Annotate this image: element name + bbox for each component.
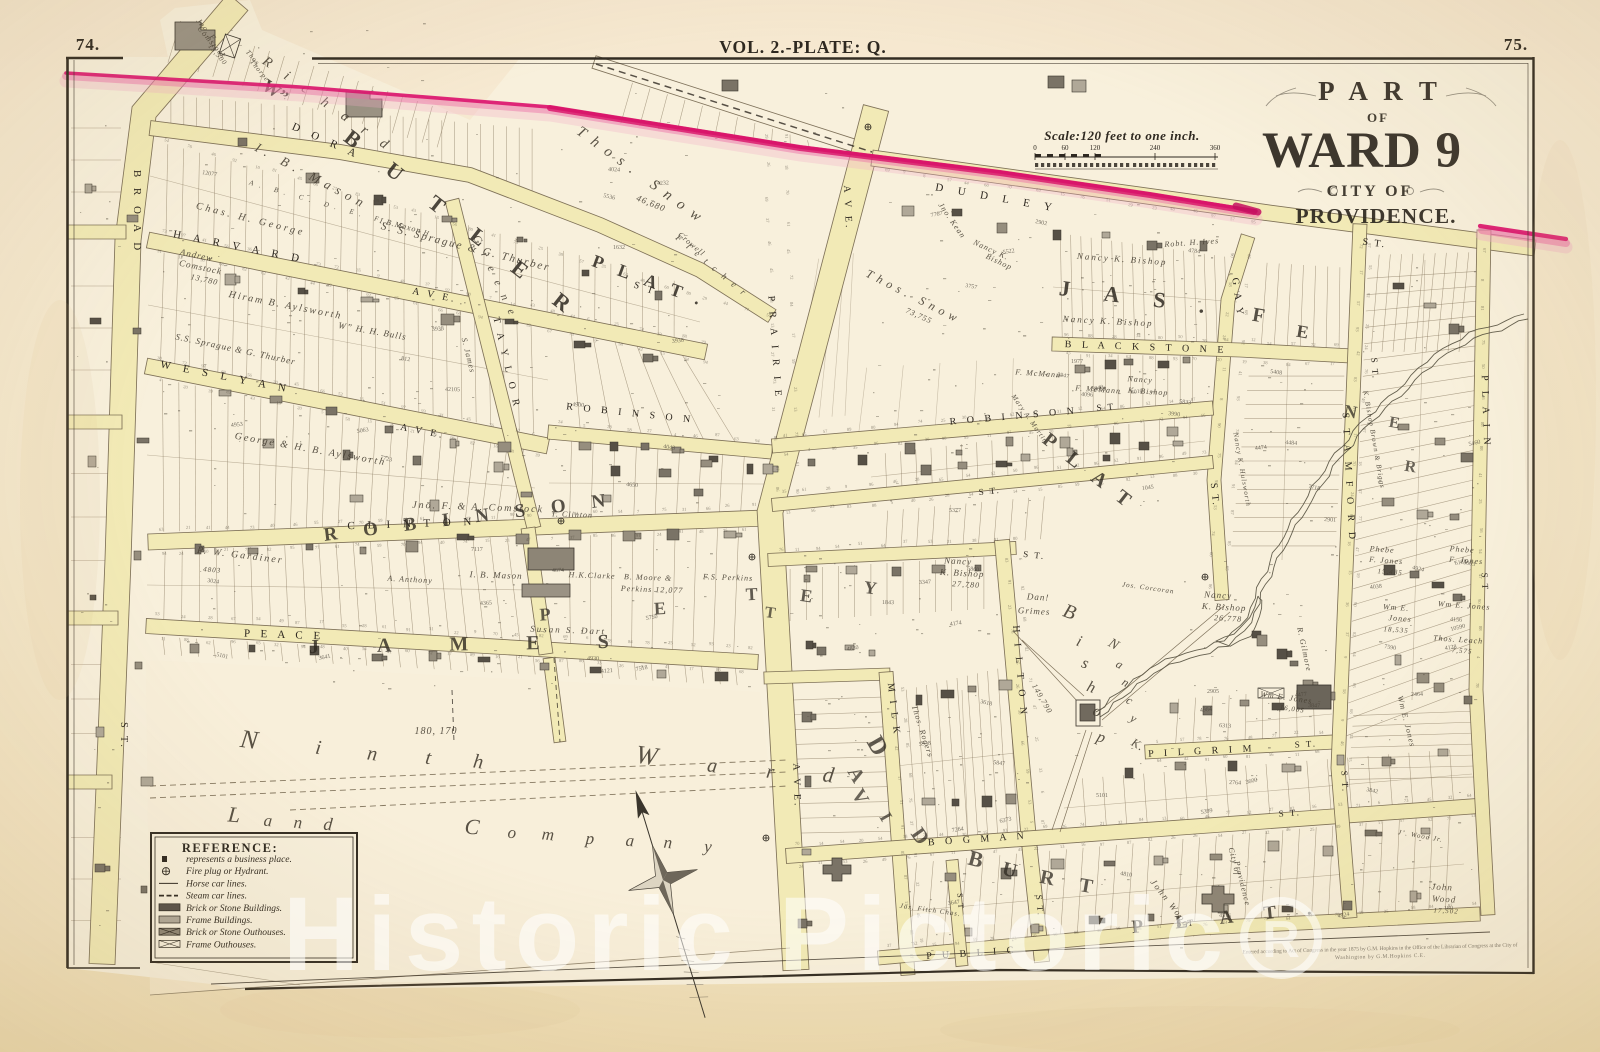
svg-text:Historic Pictoric: Historic Pictoric [283, 876, 1223, 993]
svg-text:R: R [1262, 911, 1300, 969]
